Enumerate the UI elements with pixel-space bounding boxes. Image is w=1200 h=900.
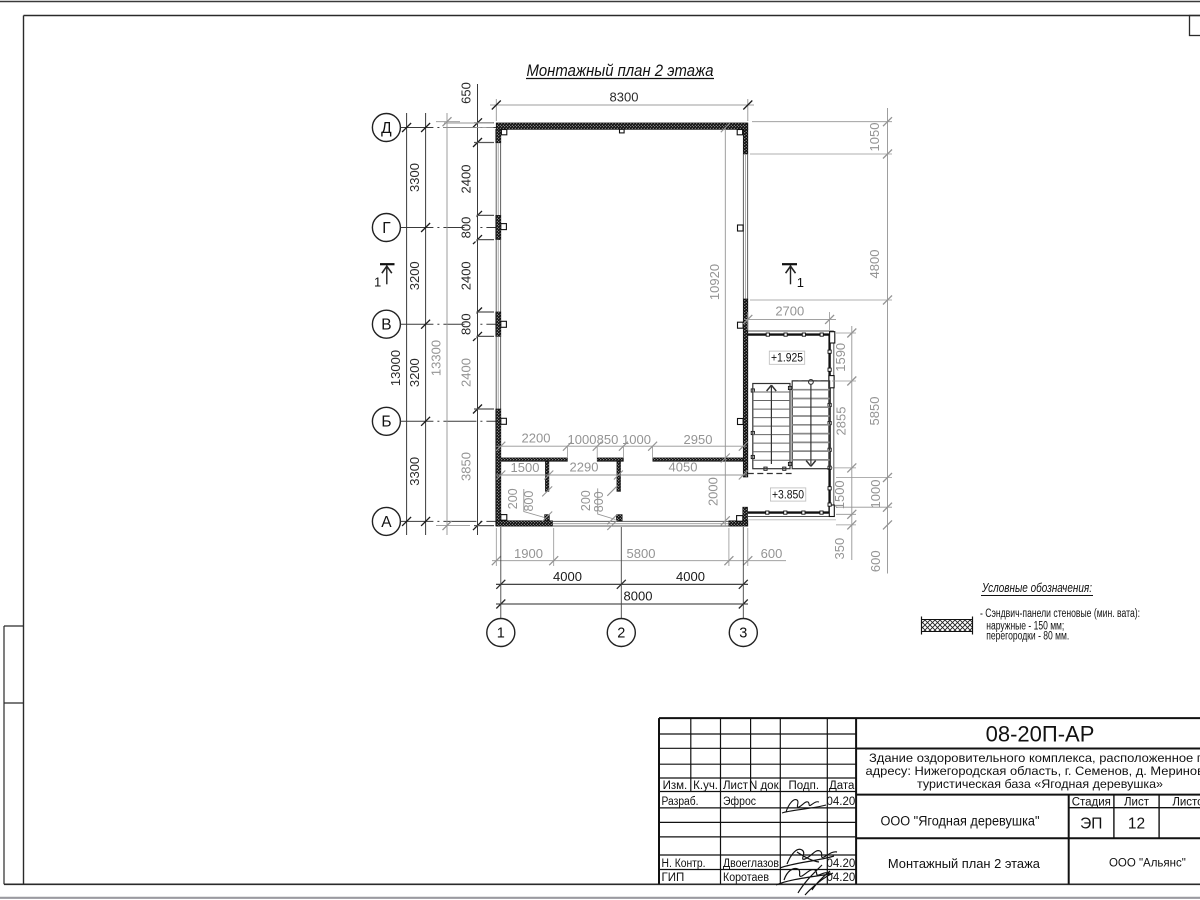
svg-text:3300: 3300 bbox=[407, 457, 422, 486]
svg-text:600: 600 bbox=[868, 550, 883, 572]
svg-text:2290: 2290 bbox=[570, 460, 599, 475]
svg-text:Лист: Лист bbox=[1124, 797, 1150, 809]
svg-text:650: 650 bbox=[459, 82, 474, 104]
svg-text:ООО "Ягодная деревушка": ООО "Ягодная деревушка" bbox=[881, 814, 1040, 829]
svg-text:5850: 5850 bbox=[867, 397, 882, 426]
svg-text:1000: 1000 bbox=[868, 480, 883, 509]
svg-text:2400: 2400 bbox=[459, 358, 474, 387]
svg-text:08-20П-АР: 08-20П-АР bbox=[986, 722, 1095, 747]
svg-text:Здание оздоровительного компле: Здание оздоровительного комплекса, распо… bbox=[869, 751, 1200, 765]
svg-text:1000: 1000 bbox=[568, 432, 597, 447]
svg-text:перегородки - 80 мм.: перегородки - 80 мм. bbox=[986, 631, 1069, 643]
svg-text:Эфрос: Эфрос bbox=[723, 794, 756, 808]
svg-text:04.20: 04.20 bbox=[827, 858, 856, 870]
svg-text:Д: Д bbox=[381, 120, 392, 137]
svg-text:Монтажный план 2 этажа: Монтажный план 2 этажа bbox=[888, 856, 1041, 871]
svg-text:1000: 1000 bbox=[622, 432, 651, 447]
svg-text:850: 850 bbox=[597, 432, 619, 447]
svg-text:2400: 2400 bbox=[459, 165, 474, 194]
svg-text:2: 2 bbox=[617, 626, 625, 642]
svg-text:12: 12 bbox=[1128, 815, 1145, 832]
svg-text:350: 350 bbox=[832, 538, 847, 560]
svg-text:Дата: Дата bbox=[829, 780, 855, 792]
svg-text:800: 800 bbox=[522, 491, 536, 512]
svg-text:Разраб.: Разраб. bbox=[662, 796, 699, 808]
svg-text:+3.850: +3.850 bbox=[772, 487, 804, 501]
svg-text:Стадия: Стадия bbox=[1072, 797, 1111, 809]
svg-text:Коротаев: Коротаев bbox=[723, 872, 769, 884]
svg-text:Подп.: Подп. bbox=[789, 780, 820, 792]
svg-text:К.уч.: К.уч. bbox=[693, 780, 718, 792]
svg-text:8300: 8300 bbox=[610, 90, 639, 105]
svg-text:1050: 1050 bbox=[867, 123, 882, 152]
svg-text:туристическая база «Ягодная де: туристическая база «Ягодная деревушка» bbox=[917, 777, 1163, 791]
svg-text:1500: 1500 bbox=[832, 480, 847, 509]
svg-text:Лист: Лист bbox=[723, 780, 749, 792]
svg-text:Н. Контр.: Н. Контр. bbox=[662, 858, 706, 870]
svg-text:Монтажный план 2 этажа: Монтажный план 2 этажа bbox=[527, 62, 714, 80]
svg-text:8000: 8000 bbox=[624, 589, 653, 604]
svg-text:ЭП: ЭП bbox=[1080, 815, 1102, 832]
svg-text:4800: 4800 bbox=[867, 250, 882, 279]
svg-text:1: 1 bbox=[374, 275, 381, 290]
svg-text:200: 200 bbox=[579, 490, 593, 511]
svg-text:5800: 5800 bbox=[627, 546, 656, 561]
svg-text:10920: 10920 bbox=[707, 264, 722, 300]
svg-text:13300: 13300 bbox=[428, 340, 443, 376]
svg-text:2000: 2000 bbox=[705, 477, 720, 506]
svg-text:2950: 2950 bbox=[684, 432, 713, 447]
svg-text:1: 1 bbox=[497, 626, 505, 642]
svg-text:Двоеглазов: Двоеглазов bbox=[723, 858, 779, 870]
svg-text:1590: 1590 bbox=[833, 343, 848, 372]
svg-text:Б: Б bbox=[381, 414, 391, 431]
svg-text:3200: 3200 bbox=[407, 261, 422, 290]
svg-text:3300: 3300 bbox=[407, 163, 422, 192]
svg-text:Листов: Листов bbox=[1172, 797, 1200, 809]
svg-text:ГИП: ГИП bbox=[662, 872, 685, 884]
svg-text:А: А bbox=[381, 514, 392, 531]
svg-text:200: 200 bbox=[506, 488, 520, 509]
svg-text:1900: 1900 bbox=[514, 546, 543, 561]
svg-text:3200: 3200 bbox=[407, 358, 422, 387]
svg-text:800: 800 bbox=[459, 313, 474, 335]
svg-text:Изм.: Изм. bbox=[663, 780, 688, 792]
svg-text:2855: 2855 bbox=[834, 407, 849, 436]
svg-text:600: 600 bbox=[761, 546, 783, 561]
svg-text:04.20: 04.20 bbox=[827, 796, 856, 808]
svg-text:13000: 13000 bbox=[388, 350, 403, 386]
svg-text:адресу: Нижегородская область,: адресу: Нижегородская область, г. Семено… bbox=[866, 764, 1200, 778]
svg-text:- Сэндвич-панели стеновые (мин: - Сэндвич-панели стеновые (мин. вата): bbox=[980, 608, 1140, 620]
svg-text:В: В bbox=[381, 317, 391, 334]
svg-text:3850: 3850 bbox=[459, 452, 474, 481]
svg-text:+1.925: +1.925 bbox=[771, 351, 803, 365]
svg-text:ООО "Альянс": ООО "Альянс" bbox=[1109, 857, 1186, 869]
svg-text:800: 800 bbox=[592, 491, 606, 512]
svg-text:4000: 4000 bbox=[553, 569, 582, 584]
svg-text:3: 3 bbox=[739, 626, 747, 642]
svg-text:2400: 2400 bbox=[459, 261, 474, 290]
svg-text:Г: Г bbox=[382, 220, 391, 237]
svg-text:Условные обозначения:: Условные обозначения: bbox=[981, 581, 1092, 595]
svg-text:2200: 2200 bbox=[522, 431, 551, 446]
svg-text:N док.: N док. bbox=[749, 780, 782, 792]
svg-text:1500: 1500 bbox=[511, 460, 540, 475]
svg-text:4050: 4050 bbox=[669, 460, 698, 475]
svg-text:4000: 4000 bbox=[676, 569, 705, 584]
svg-text:2700: 2700 bbox=[775, 304, 804, 319]
svg-text:1: 1 bbox=[797, 275, 804, 290]
svg-text:800: 800 bbox=[459, 217, 474, 239]
